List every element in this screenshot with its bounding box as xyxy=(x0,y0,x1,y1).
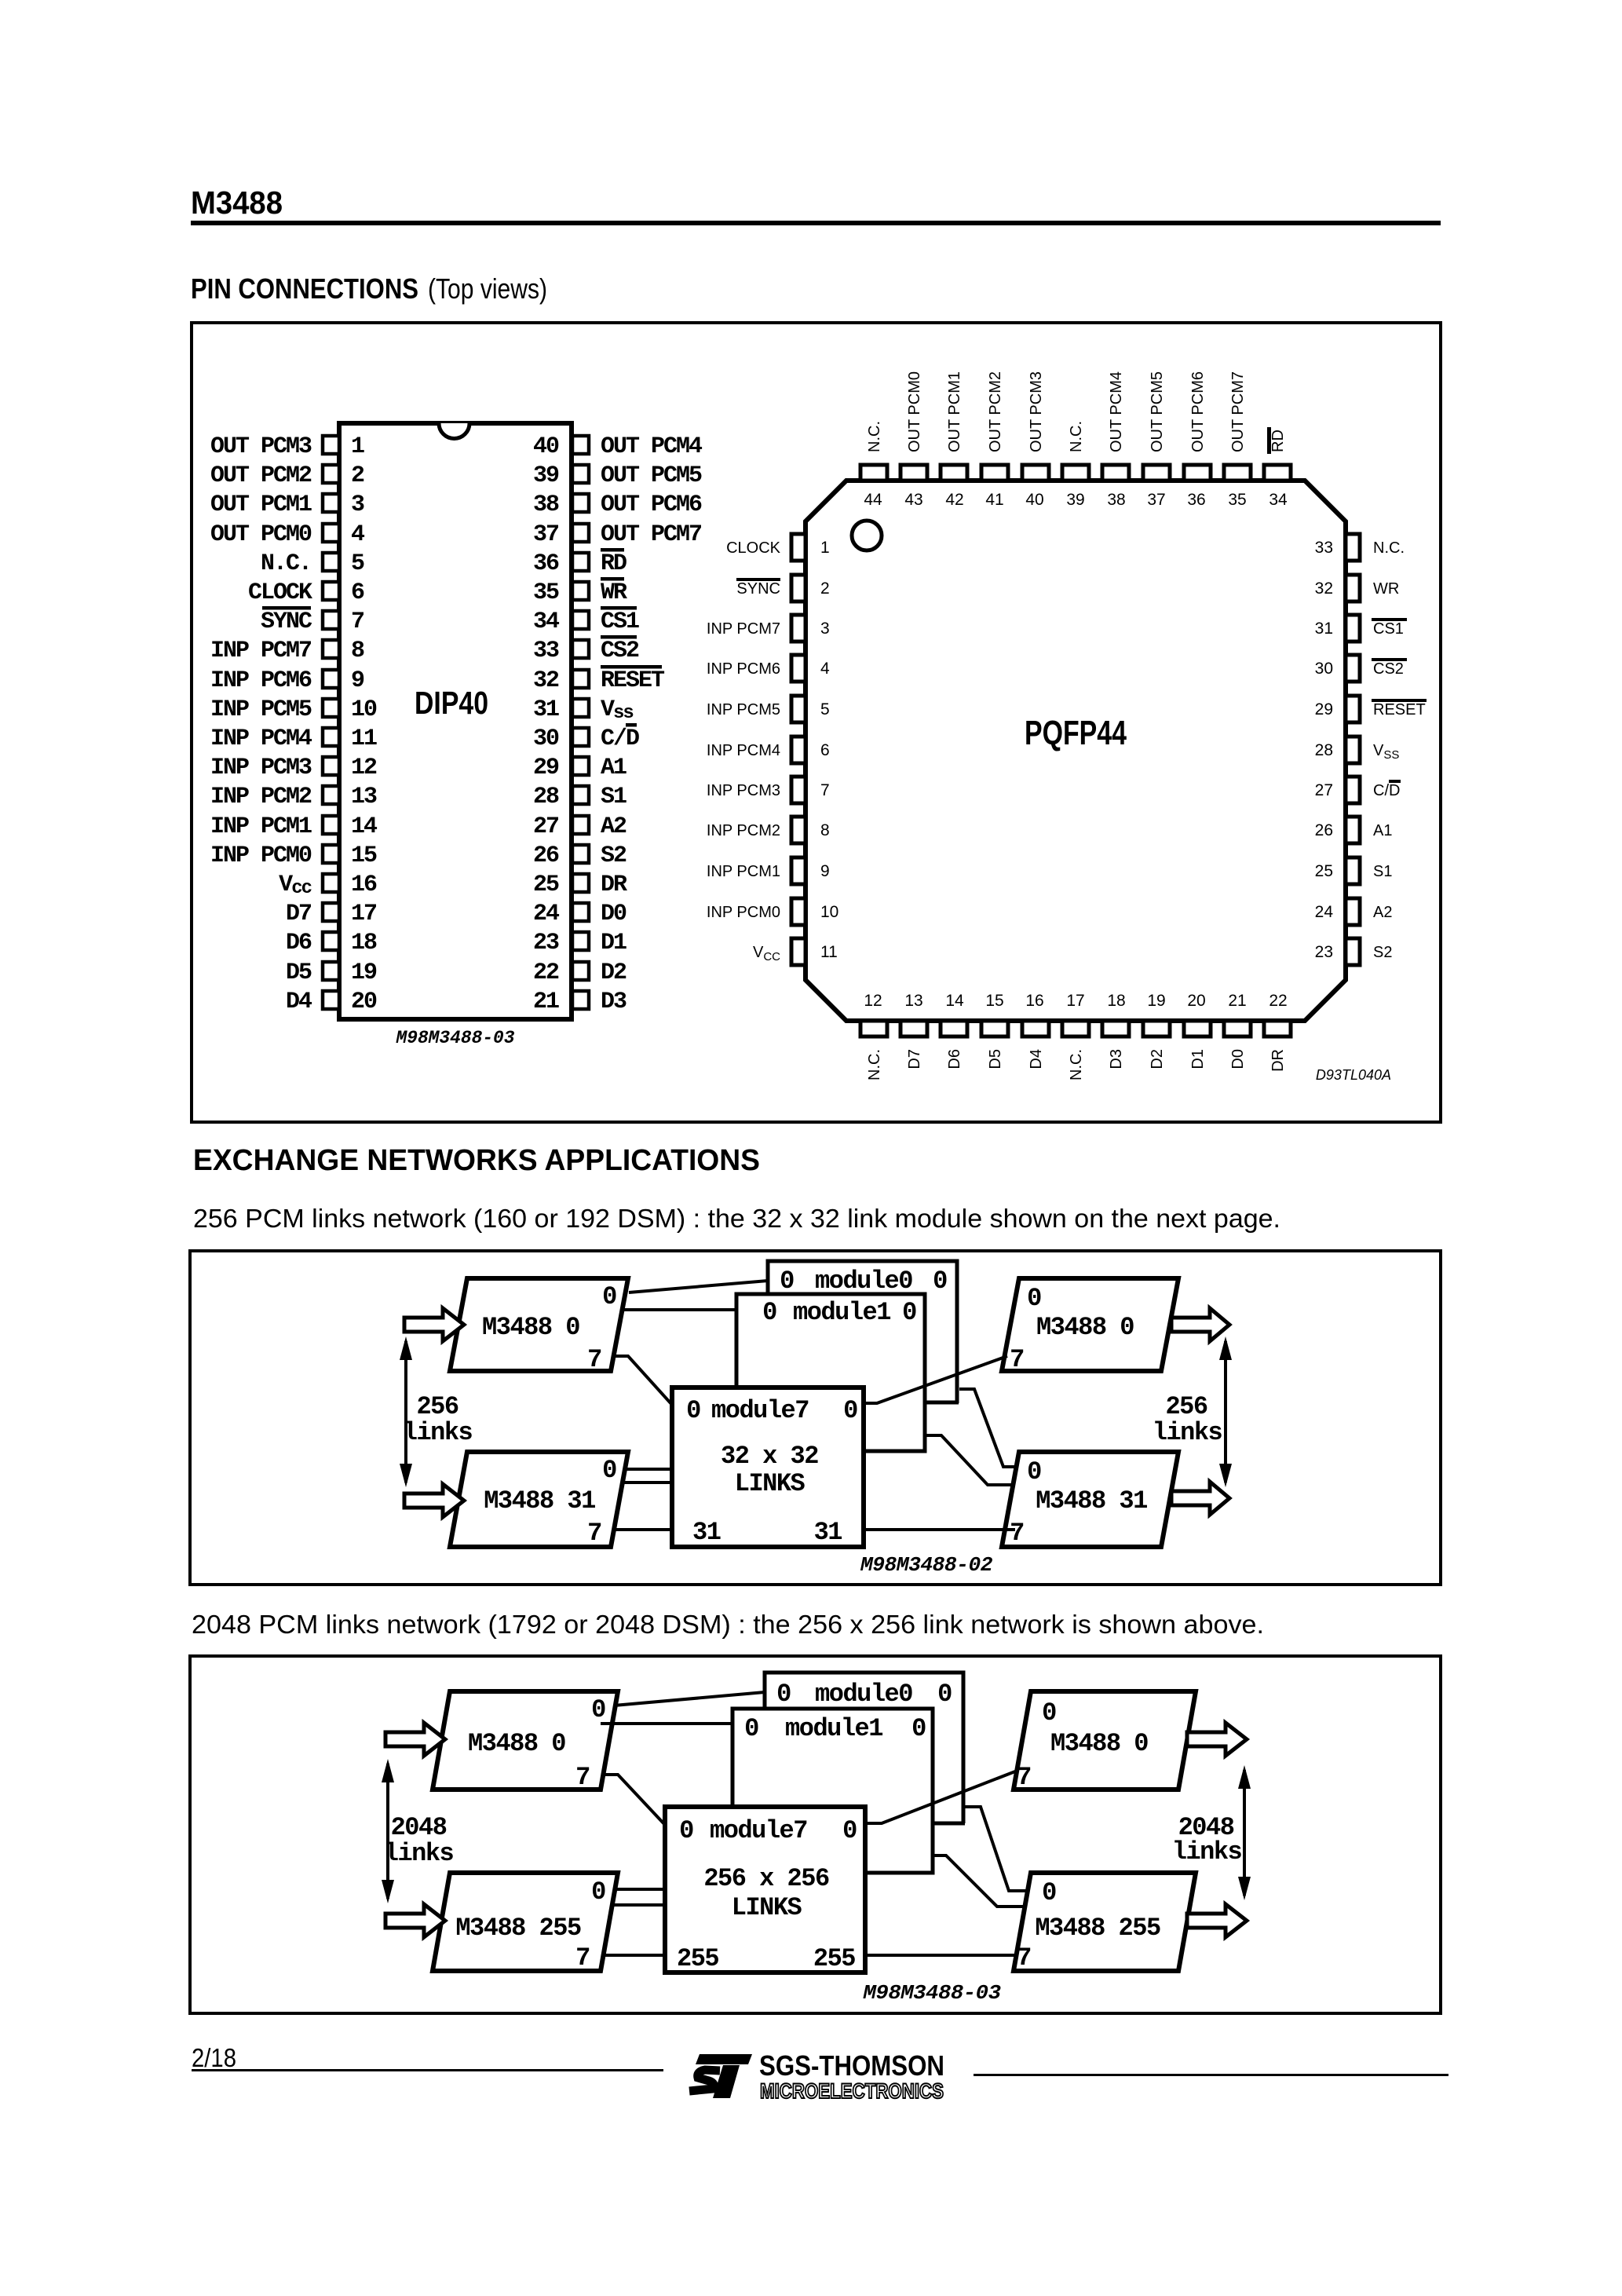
svg-text:INP PCM2: INP PCM2 xyxy=(210,784,312,810)
svg-text:33: 33 xyxy=(533,638,559,664)
svg-text:40: 40 xyxy=(1025,491,1043,509)
svg-text:7: 7 xyxy=(1010,1519,1024,1548)
svg-text:11: 11 xyxy=(351,726,377,752)
svg-text:A2: A2 xyxy=(601,813,627,840)
svg-text:OUT PCM0: OUT PCM0 xyxy=(210,521,312,548)
svg-text:EXCHANGE NETWORKS APPLICATIONS: EXCHANGE NETWORKS APPLICATIONS xyxy=(193,1144,760,1177)
svg-text:0: 0 xyxy=(933,1267,947,1296)
svg-text:OUT PCM1: OUT PCM1 xyxy=(946,371,963,452)
svg-text:CS1: CS1 xyxy=(1373,620,1404,638)
svg-text:PQFP44: PQFP44 xyxy=(1025,714,1127,752)
svg-text:D5: D5 xyxy=(987,1049,1004,1069)
svg-text:1: 1 xyxy=(351,433,364,460)
svg-text:7: 7 xyxy=(1017,1763,1031,1792)
svg-text:22: 22 xyxy=(533,960,559,986)
svg-text:D7: D7 xyxy=(906,1049,923,1069)
svg-text:0: 0 xyxy=(776,1680,791,1709)
svg-text:WR: WR xyxy=(1373,580,1399,598)
svg-text:M3488 31: M3488 31 xyxy=(484,1486,595,1515)
svg-text:255: 255 xyxy=(677,1944,718,1973)
svg-text:42: 42 xyxy=(945,491,963,509)
svg-text:38: 38 xyxy=(1107,491,1125,509)
svg-text:INP PCM0: INP PCM0 xyxy=(210,843,312,869)
svg-text:OUT PCM5: OUT PCM5 xyxy=(1149,371,1166,452)
svg-text:D3: D3 xyxy=(601,989,627,1015)
svg-text:37: 37 xyxy=(1147,491,1165,509)
svg-text:links: links xyxy=(1153,1418,1222,1447)
svg-text:M3488 255: M3488 255 xyxy=(1035,1914,1160,1943)
svg-text:M3488 0: M3488 0 xyxy=(1050,1729,1148,1758)
svg-text:35: 35 xyxy=(533,579,559,606)
svg-text:S1: S1 xyxy=(1373,863,1392,880)
svg-text:36: 36 xyxy=(1187,491,1205,509)
svg-text:17: 17 xyxy=(1066,992,1084,1010)
svg-text:7: 7 xyxy=(575,1763,590,1792)
svg-text:INP PCM7: INP PCM7 xyxy=(707,620,780,638)
svg-text:N.C.: N.C. xyxy=(1068,1049,1085,1080)
svg-text:30: 30 xyxy=(1315,660,1333,678)
svg-text:27: 27 xyxy=(1315,781,1333,799)
svg-text:CS2: CS2 xyxy=(601,638,639,664)
svg-text:0: 0 xyxy=(679,1816,693,1845)
svg-text:INP PCM4: INP PCM4 xyxy=(707,742,780,759)
svg-text:9: 9 xyxy=(820,862,830,880)
svg-text:D6: D6 xyxy=(286,930,312,956)
svg-text:M3488: M3488 xyxy=(191,185,283,221)
svg-text:D0: D0 xyxy=(601,901,627,927)
svg-text:LINKS: LINKS xyxy=(732,1893,802,1922)
svg-text:0: 0 xyxy=(602,1282,616,1311)
svg-text:D5: D5 xyxy=(286,960,312,986)
svg-text:D2: D2 xyxy=(601,960,627,986)
svg-text:15: 15 xyxy=(351,843,377,869)
svg-text:30: 30 xyxy=(533,726,559,752)
svg-text:27: 27 xyxy=(533,813,558,840)
svg-text:0: 0 xyxy=(686,1396,700,1425)
svg-text:SYNC: SYNC xyxy=(736,580,780,598)
svg-text:N.C.: N.C. xyxy=(1068,421,1085,452)
svg-text:RESET: RESET xyxy=(601,667,665,694)
svg-text:0: 0 xyxy=(1042,1878,1056,1907)
svg-text:16: 16 xyxy=(1025,992,1043,1010)
svg-text:INP PCM4: INP PCM4 xyxy=(210,726,312,752)
svg-text:25: 25 xyxy=(1315,862,1333,880)
svg-text:OUT PCM6: OUT PCM6 xyxy=(1189,371,1207,452)
svg-text:7: 7 xyxy=(1017,1943,1031,1972)
svg-text:19: 19 xyxy=(351,960,377,986)
svg-text:20: 20 xyxy=(1187,992,1205,1010)
svg-text:D1: D1 xyxy=(601,930,627,956)
svg-text:M3488 0: M3488 0 xyxy=(482,1313,579,1342)
svg-text:13: 13 xyxy=(351,784,377,810)
svg-text:31: 31 xyxy=(1315,620,1333,638)
svg-text:links: links xyxy=(1172,1837,1242,1866)
svg-text:0: 0 xyxy=(911,1714,926,1743)
svg-text:18: 18 xyxy=(1107,992,1125,1010)
svg-text:26: 26 xyxy=(1315,821,1333,839)
svg-text:256 x 256: 256 x 256 xyxy=(703,1864,829,1893)
svg-text:OUT PCM3: OUT PCM3 xyxy=(210,433,312,460)
svg-text:2: 2 xyxy=(820,579,830,598)
svg-text:INP PCM3: INP PCM3 xyxy=(707,782,780,799)
svg-text:OUT PCM6: OUT PCM6 xyxy=(601,492,702,518)
svg-text:7: 7 xyxy=(587,1345,601,1374)
svg-text:8: 8 xyxy=(351,638,364,664)
svg-text:0: 0 xyxy=(1027,1284,1041,1313)
svg-text:OUT PCM2: OUT PCM2 xyxy=(987,371,1004,452)
svg-text:32: 32 xyxy=(533,667,559,694)
svg-text:N.C.: N.C. xyxy=(866,421,883,452)
svg-text:11: 11 xyxy=(820,943,838,961)
svg-text:INP PCM6: INP PCM6 xyxy=(707,660,780,678)
svg-text:39: 39 xyxy=(1066,491,1084,509)
svg-text:links: links xyxy=(384,1839,454,1868)
svg-text:S1: S1 xyxy=(601,784,627,810)
svg-text:29: 29 xyxy=(533,755,559,781)
svg-text:19: 19 xyxy=(1147,992,1165,1010)
svg-text:32 x 32: 32 x 32 xyxy=(721,1442,818,1471)
svg-text:13: 13 xyxy=(904,992,922,1010)
svg-text:7: 7 xyxy=(587,1519,601,1548)
svg-text:INP PCM5: INP PCM5 xyxy=(210,696,312,723)
svg-text:CLOCK: CLOCK xyxy=(726,539,781,557)
svg-text:4: 4 xyxy=(820,660,830,678)
svg-text:14: 14 xyxy=(945,992,964,1010)
svg-text:256 PCM links network (160 or: 256 PCM links network (160 or 192 DSM) :… xyxy=(193,1204,1280,1233)
svg-text:INP PCM2: INP PCM2 xyxy=(707,822,780,839)
svg-text:0: 0 xyxy=(937,1680,952,1709)
svg-text:24: 24 xyxy=(533,901,560,927)
svg-text:DIP40: DIP40 xyxy=(415,685,488,721)
svg-text:31: 31 xyxy=(692,1518,721,1547)
svg-text:18: 18 xyxy=(351,930,377,956)
svg-text:44: 44 xyxy=(864,491,882,509)
svg-text:D6: D6 xyxy=(946,1049,963,1069)
svg-text:CS2: CS2 xyxy=(1373,660,1404,678)
svg-text:20: 20 xyxy=(351,989,377,1015)
svg-text:0: 0 xyxy=(591,1877,605,1907)
svg-text:3: 3 xyxy=(351,492,364,518)
svg-text:D2: D2 xyxy=(1149,1049,1166,1069)
svg-text:39: 39 xyxy=(533,462,559,489)
svg-text:255: 255 xyxy=(813,1944,855,1973)
svg-text:0: 0 xyxy=(902,1298,916,1327)
svg-text:A2: A2 xyxy=(1373,904,1392,921)
svg-text:4: 4 xyxy=(351,521,365,548)
svg-text:0: 0 xyxy=(1027,1457,1041,1486)
svg-text:3: 3 xyxy=(820,620,830,638)
svg-text:256: 256 xyxy=(416,1392,458,1421)
svg-text:N.C.: N.C. xyxy=(261,550,311,577)
svg-text:2048: 2048 xyxy=(391,1813,447,1842)
svg-text:7: 7 xyxy=(351,609,363,635)
svg-text:5: 5 xyxy=(820,700,830,718)
svg-text:7: 7 xyxy=(575,1943,590,1972)
svg-text:0: 0 xyxy=(591,1695,605,1724)
svg-text:23: 23 xyxy=(533,930,559,956)
svg-text:N.C.: N.C. xyxy=(1373,539,1405,557)
svg-text:module7: module7 xyxy=(711,1396,809,1425)
svg-text:10: 10 xyxy=(351,696,377,723)
svg-text:D4: D4 xyxy=(1028,1049,1045,1069)
svg-text:DR: DR xyxy=(601,872,627,898)
svg-text:CS1: CS1 xyxy=(601,609,639,635)
svg-text:PIN CONNECTIONS: PIN CONNECTIONS xyxy=(191,272,418,305)
svg-text:33: 33 xyxy=(1315,539,1333,557)
svg-text:32: 32 xyxy=(1315,579,1333,598)
svg-text:SGS-THOMSON: SGS-THOMSON xyxy=(759,2049,944,2082)
svg-text:1: 1 xyxy=(820,539,830,557)
svg-text:M3488 255: M3488 255 xyxy=(455,1914,581,1943)
svg-text:0: 0 xyxy=(843,1396,857,1425)
svg-text:2: 2 xyxy=(351,462,364,489)
svg-text:28: 28 xyxy=(533,784,559,810)
svg-text:2048 PCM links network (1792 o: 2048 PCM links network (1792 or 2048 DSM… xyxy=(192,1610,1264,1639)
svg-text:8: 8 xyxy=(820,821,830,839)
svg-text:M98M3488-03: M98M3488-03 xyxy=(396,1028,515,1048)
svg-text:24: 24 xyxy=(1315,903,1334,921)
svg-text:34: 34 xyxy=(1269,491,1288,509)
svg-text:26: 26 xyxy=(533,843,559,869)
svg-text:14: 14 xyxy=(351,813,378,840)
svg-text:43: 43 xyxy=(904,491,922,509)
svg-text:SYNC: SYNC xyxy=(261,609,312,635)
svg-text:36: 36 xyxy=(533,550,559,577)
svg-text:INP PCM5: INP PCM5 xyxy=(707,701,780,718)
svg-text:module1: module1 xyxy=(793,1298,890,1327)
svg-text:22: 22 xyxy=(1269,992,1287,1010)
svg-text:16: 16 xyxy=(351,872,377,898)
svg-text:256: 256 xyxy=(1165,1392,1207,1421)
svg-text:WR: WR xyxy=(601,579,627,606)
svg-text:(Top views): (Top views) xyxy=(428,272,547,305)
svg-text:12: 12 xyxy=(351,755,377,781)
svg-text:15: 15 xyxy=(985,992,1003,1010)
svg-text:10: 10 xyxy=(820,903,838,921)
svg-text:M3488 31: M3488 31 xyxy=(1036,1486,1147,1515)
svg-text:OUT PCM4: OUT PCM4 xyxy=(601,433,703,460)
svg-text:INP PCM3: INP PCM3 xyxy=(210,755,312,781)
svg-text:40: 40 xyxy=(533,433,559,460)
svg-text:D1: D1 xyxy=(1189,1049,1207,1069)
svg-text:M3488 0: M3488 0 xyxy=(468,1729,565,1758)
svg-text:41: 41 xyxy=(985,491,1003,509)
svg-text:A1: A1 xyxy=(1373,822,1392,839)
svg-text:OUT PCM1: OUT PCM1 xyxy=(210,492,312,518)
svg-text:5: 5 xyxy=(351,550,364,577)
svg-text:RD: RD xyxy=(1269,430,1287,452)
svg-text:OUT PCM2: OUT PCM2 xyxy=(210,462,312,489)
svg-text:OUT PCM4: OUT PCM4 xyxy=(1108,371,1125,452)
svg-text:31: 31 xyxy=(814,1518,842,1547)
svg-text:module7: module7 xyxy=(710,1816,807,1845)
svg-text:C/D: C/D xyxy=(601,726,639,752)
svg-text:7: 7 xyxy=(820,781,830,799)
svg-text:35: 35 xyxy=(1228,491,1246,509)
svg-text:module0: module0 xyxy=(815,1680,912,1709)
svg-text:S2: S2 xyxy=(1373,944,1392,961)
svg-text:0: 0 xyxy=(762,1298,776,1327)
svg-text:29: 29 xyxy=(1315,700,1333,718)
svg-text:M98M3488-02: M98M3488-02 xyxy=(860,1553,993,1577)
svg-text:37: 37 xyxy=(533,521,558,548)
svg-text:DR: DR xyxy=(1269,1049,1287,1072)
svg-text:21: 21 xyxy=(533,989,559,1015)
svg-text:RD: RD xyxy=(601,550,627,577)
svg-text:OUT PCM7: OUT PCM7 xyxy=(601,521,701,548)
svg-text:2/18: 2/18 xyxy=(192,2043,236,2072)
svg-text:OUT PCM3: OUT PCM3 xyxy=(1028,371,1045,452)
svg-text:OUT PCM7: OUT PCM7 xyxy=(1229,371,1247,452)
svg-text:D4: D4 xyxy=(286,989,312,1015)
svg-text:MICROELECTRONICS: MICROELECTRONICS xyxy=(760,2079,944,2103)
svg-text:D93TL040A: D93TL040A xyxy=(1316,1067,1391,1083)
svg-text:23: 23 xyxy=(1315,943,1333,961)
svg-text:D0: D0 xyxy=(1229,1049,1247,1069)
svg-text:31: 31 xyxy=(533,696,559,723)
svg-text:34: 34 xyxy=(533,609,560,635)
svg-text:module0: module0 xyxy=(815,1267,912,1296)
svg-text:38: 38 xyxy=(533,492,559,518)
svg-text:INP PCM7: INP PCM7 xyxy=(210,638,311,664)
svg-text:D7: D7 xyxy=(286,901,311,927)
svg-text:C/D: C/D xyxy=(1373,782,1400,799)
svg-text:INP PCM1: INP PCM1 xyxy=(210,813,312,840)
svg-text:6: 6 xyxy=(820,741,830,759)
svg-text:RESET: RESET xyxy=(1373,701,1426,718)
svg-text:0: 0 xyxy=(842,1816,857,1845)
svg-text:28: 28 xyxy=(1315,741,1333,759)
svg-text:0: 0 xyxy=(744,1714,758,1743)
svg-text:S2: S2 xyxy=(601,843,627,869)
svg-text:links: links xyxy=(403,1418,473,1447)
svg-text:M3488 0: M3488 0 xyxy=(1036,1313,1134,1342)
svg-text:17: 17 xyxy=(351,901,376,927)
svg-text:0: 0 xyxy=(1042,1698,1056,1727)
svg-text:CLOCK: CLOCK xyxy=(248,579,312,606)
svg-text:0: 0 xyxy=(602,1456,616,1485)
svg-text:M98M3488-03: M98M3488-03 xyxy=(862,1981,1001,2005)
svg-text:6: 6 xyxy=(351,579,364,606)
svg-text:LINKS: LINKS xyxy=(735,1469,806,1498)
svg-text:25: 25 xyxy=(533,872,559,898)
svg-text:D3: D3 xyxy=(1108,1049,1125,1069)
svg-text:0: 0 xyxy=(780,1267,794,1296)
svg-text:A1: A1 xyxy=(601,755,627,781)
svg-text:21: 21 xyxy=(1228,992,1246,1010)
svg-text:9: 9 xyxy=(351,667,364,694)
svg-text:module1: module1 xyxy=(785,1714,882,1743)
svg-text:7: 7 xyxy=(1010,1345,1024,1374)
svg-text:OUT PCM5: OUT PCM5 xyxy=(601,462,702,489)
svg-text:INP PCM1: INP PCM1 xyxy=(707,863,780,880)
svg-text:INP PCM0: INP PCM0 xyxy=(707,904,780,921)
svg-text:OUT PCM0: OUT PCM0 xyxy=(906,371,923,452)
svg-text:N.C.: N.C. xyxy=(866,1049,883,1080)
svg-text:12: 12 xyxy=(864,992,882,1010)
svg-text:INP PCM6: INP PCM6 xyxy=(210,667,312,694)
